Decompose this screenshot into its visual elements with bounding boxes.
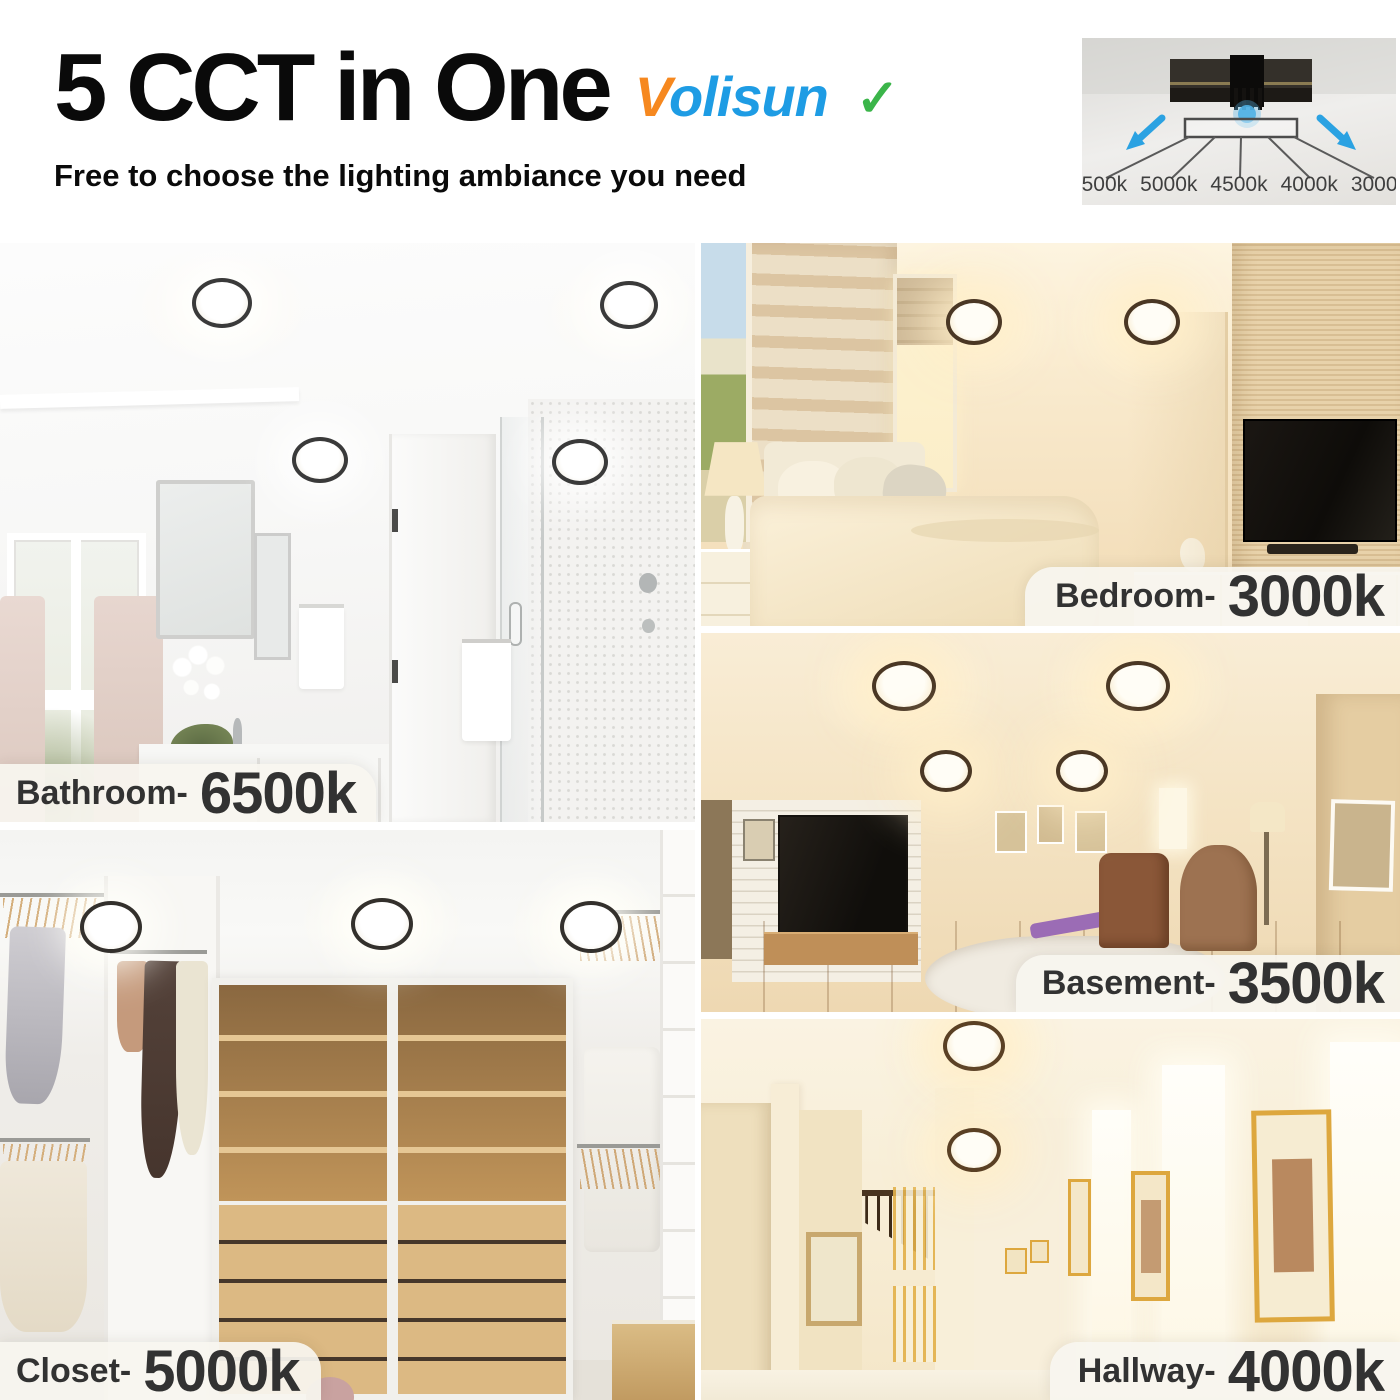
- page-subtitle: Free to choose the lighting ambiance you…: [54, 158, 746, 194]
- ceiling-light: [80, 901, 142, 953]
- ceiling-light: [1124, 299, 1180, 345]
- gallery-mini-frames: [893, 1286, 938, 1362]
- framed-art: [1141, 1200, 1161, 1273]
- photo-bathroom: Bathroom- 6500k: [0, 243, 695, 822]
- blue-arrow-left: [1126, 118, 1162, 150]
- brand-letters-rest: olisun: [669, 65, 828, 128]
- volisun-logo: Volisun: [635, 64, 828, 139]
- tv: [1243, 419, 1397, 542]
- brand-letter-v: V: [635, 65, 669, 128]
- light-panel-outline: [1185, 119, 1297, 137]
- room-label-closet: Closet- 5000k: [0, 1342, 321, 1400]
- crown-molding: [0, 387, 299, 409]
- ceiling-light: [920, 750, 972, 792]
- door-hinge: [392, 509, 398, 532]
- room-label-bedroom: Bedroom- 3000k: [1025, 567, 1400, 626]
- bright-window: [1159, 788, 1187, 849]
- room-name: Hallway-: [1078, 1352, 1216, 1391]
- room-name: Basement-: [1042, 964, 1216, 1003]
- room-name: Bathroom-: [16, 774, 188, 813]
- floor-lamp-shade: [1250, 802, 1285, 832]
- photo-bedroom: Bedroom- 3000k: [701, 243, 1400, 626]
- ceiling-light: [947, 1128, 1001, 1172]
- picture-frame: [995, 811, 1027, 853]
- room-cct: 3000k: [1228, 563, 1384, 626]
- tv-stand: [764, 932, 918, 964]
- gallery-mini-frames: [893, 1187, 935, 1271]
- wall-picture: [1329, 799, 1395, 892]
- ceiling-light: [943, 1021, 1005, 1071]
- tv-soundbar: [1267, 544, 1358, 554]
- room-label-basement: Basement- 3500k: [1016, 955, 1400, 1012]
- cct-options-row: 6500k 5000k 4500k 4000k 3000k: [1082, 173, 1396, 197]
- cct-option: 4000k: [1281, 173, 1338, 197]
- faucet: [233, 718, 242, 747]
- duvet-fold: [911, 519, 1100, 542]
- picture-frame: [743, 819, 775, 861]
- tv: [778, 815, 908, 936]
- shelf-bays: [398, 985, 566, 1202]
- ceiling-light: [1106, 661, 1170, 711]
- mirror: [156, 480, 254, 639]
- cct-diagram: 6500k 5000k 4500k 4000k 3000k: [1082, 38, 1396, 205]
- photo-hallway: Hallway- 4000k: [701, 1019, 1400, 1400]
- fan-lines: [1106, 137, 1374, 178]
- light-halo: [506, 243, 696, 392]
- tiny-frame: [1030, 1240, 1049, 1263]
- ceiling-light: [560, 901, 622, 953]
- window-palm-view: [701, 243, 752, 542]
- checkmark-icon: ✓: [856, 69, 900, 139]
- hanging-dress-cream: [176, 961, 208, 1155]
- framed-portrait: [1273, 1160, 1314, 1274]
- hanging-clothes-cream: [0, 1161, 87, 1332]
- ceiling-light: [872, 661, 936, 711]
- gold-frame-medium: [1131, 1171, 1170, 1301]
- wood-framed-picture: [806, 1232, 862, 1326]
- wall-pillar: [771, 1084, 799, 1400]
- ceiling-light: [946, 299, 1002, 345]
- mirror-small: [254, 533, 291, 661]
- drawer-stack: [398, 1205, 566, 1393]
- cct-option: 4500k: [1210, 173, 1267, 197]
- room-cct: 3500k: [1228, 950, 1384, 1012]
- ceiling-light: [292, 437, 348, 483]
- room-cct: 4000k: [1228, 1338, 1384, 1400]
- ceiling-light: [552, 439, 608, 485]
- photo-basement: Basement- 3500k: [701, 633, 1400, 1012]
- shelf-column: [398, 985, 566, 1394]
- page-title: 5 CCT in One: [54, 38, 609, 139]
- shelf-divider: [387, 978, 398, 1400]
- orchid-flowers: [167, 643, 237, 724]
- room-name: Bedroom-: [1055, 577, 1216, 616]
- room-name: Closet-: [16, 1352, 131, 1391]
- ceiling-light: [351, 898, 413, 950]
- wing-chair: [1180, 845, 1257, 951]
- vanity-counter: [139, 744, 389, 759]
- photo-closet: Closet- 5000k: [0, 830, 695, 1400]
- table-lamp-body: [725, 496, 743, 553]
- shelf-column: [219, 985, 387, 1394]
- tiny-frame: [1005, 1248, 1027, 1275]
- left-recess: [701, 1103, 771, 1400]
- ceiling-light: [1056, 750, 1108, 792]
- hanging-dress-gray: [4, 926, 66, 1105]
- room-cct: 5000k: [143, 1338, 299, 1400]
- door: [389, 434, 496, 822]
- room-label-hallway: Hallway- 4000k: [1050, 1342, 1400, 1400]
- clothes-rod: [0, 893, 108, 898]
- picture-frame: [1037, 805, 1065, 843]
- cct-option: 6500k: [1082, 173, 1127, 197]
- small-gold-frame: [1068, 1179, 1091, 1276]
- door-hinge: [392, 660, 398, 683]
- towel: [299, 608, 344, 689]
- blue-arrow-right: [1320, 118, 1356, 150]
- clothes-rod: [0, 1138, 90, 1143]
- room-label-bathroom: Bathroom- 6500k: [0, 764, 376, 822]
- ceiling-light: [192, 278, 252, 328]
- picture-frame: [1075, 811, 1107, 853]
- cct-option: 5000k: [1140, 173, 1197, 197]
- gold-frame-large: [1251, 1110, 1335, 1323]
- shower-valve: [642, 619, 655, 633]
- shower-towel: [462, 643, 511, 741]
- ceiling-light: [600, 281, 658, 329]
- side-shelf-unit: [660, 830, 695, 1360]
- cct-option: 3000k: [1351, 173, 1396, 197]
- roman-shade: [897, 278, 953, 345]
- shelf-bays: [219, 985, 387, 1202]
- shower-handle: [509, 602, 523, 647]
- table-lamp-shade: [704, 442, 767, 496]
- leather-chair: [1099, 853, 1169, 948]
- alcove: [1127, 312, 1228, 572]
- room-cct: 6500k: [200, 760, 356, 823]
- island-dresser: [612, 1320, 695, 1400]
- header: 5 CCT in One Volisun ✓: [54, 38, 899, 139]
- floor-lamp-pole: [1264, 826, 1269, 925]
